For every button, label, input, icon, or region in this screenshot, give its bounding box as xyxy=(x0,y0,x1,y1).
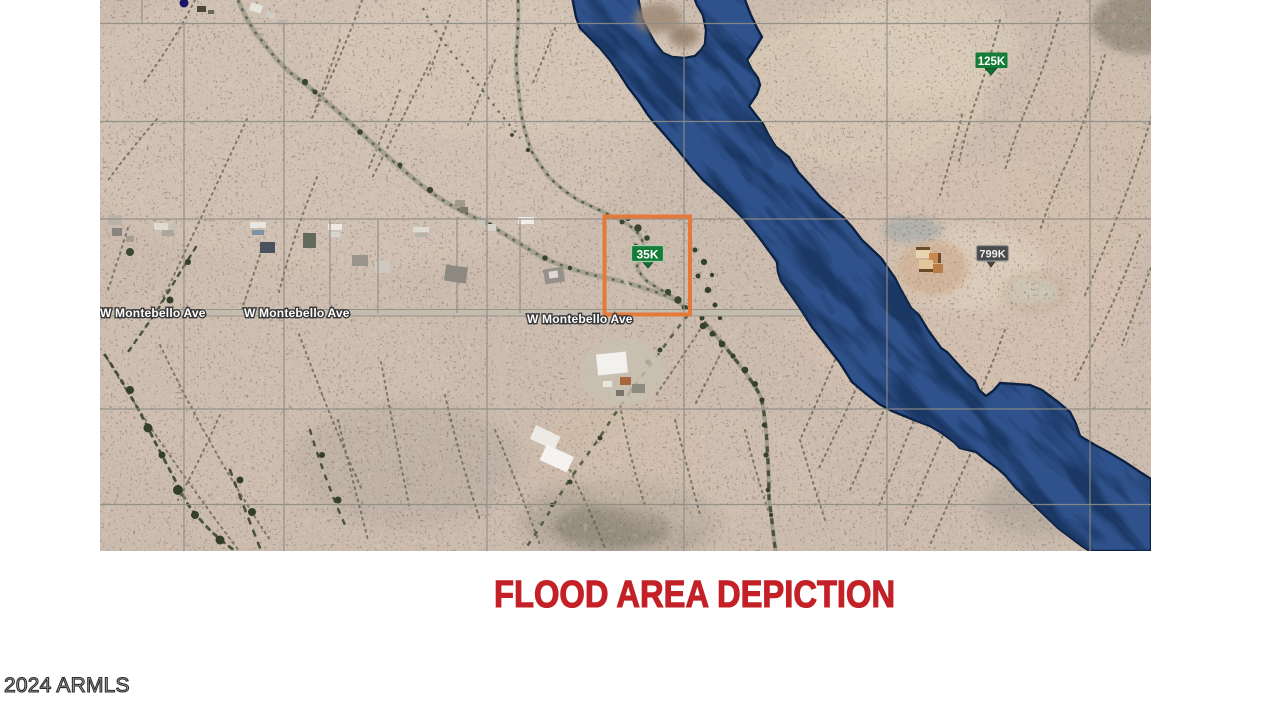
svg-text:W Montebello Ave: W Montebello Ave xyxy=(527,312,633,326)
svg-text:125K: 125K xyxy=(978,56,1006,68)
svg-text:W Montebello Ave: W Montebello Ave xyxy=(244,306,350,320)
svg-text:W Montebello Ave: W Montebello Ave xyxy=(100,306,206,320)
svg-text:799K: 799K xyxy=(979,249,1005,261)
svg-text:35K: 35K xyxy=(636,248,658,262)
